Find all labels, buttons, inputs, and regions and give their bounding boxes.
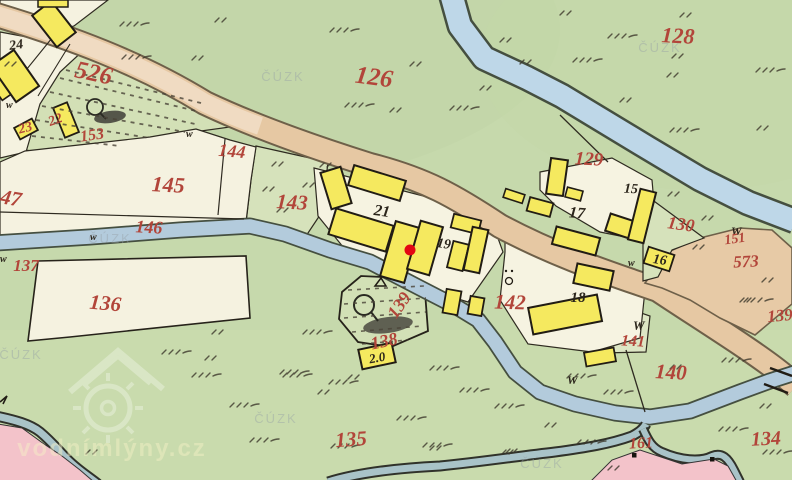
svg-text:129: 129 — [574, 148, 604, 170]
svg-text:144: 144 — [218, 140, 247, 162]
svg-text:w: w — [628, 258, 635, 269]
svg-text:130: 130 — [666, 212, 696, 236]
svg-text:ČÚZK: ČÚZK — [261, 69, 304, 84]
svg-text:145: 145 — [151, 171, 185, 198]
svg-text:143: 143 — [276, 189, 309, 215]
svg-text:ČÚZK: ČÚZK — [254, 411, 297, 426]
svg-text:153: 153 — [79, 125, 105, 145]
svg-text:126: 126 — [353, 62, 394, 94]
svg-text:573: 573 — [733, 251, 760, 271]
svg-text:w: w — [0, 254, 7, 265]
svg-text:137: 137 — [13, 256, 40, 275]
svg-text:134: 134 — [750, 427, 781, 451]
svg-text:135: 135 — [334, 426, 367, 452]
svg-text:15: 15 — [624, 182, 639, 198]
svg-text:141: 141 — [621, 332, 646, 350]
svg-text:ČÚZK: ČÚZK — [88, 231, 131, 246]
svg-text:24: 24 — [7, 37, 24, 54]
svg-text:21: 21 — [372, 202, 391, 221]
svg-text:17: 17 — [568, 204, 586, 222]
svg-text:W: W — [567, 373, 579, 387]
svg-text:139: 139 — [766, 305, 792, 326]
svg-text:18: 18 — [571, 290, 587, 306]
svg-text:16: 16 — [652, 252, 668, 269]
svg-text:w: w — [186, 129, 193, 140]
svg-text:136: 136 — [89, 290, 123, 317]
svg-text:140: 140 — [655, 359, 688, 385]
svg-text:146: 146 — [135, 216, 163, 237]
svg-text:19: 19 — [436, 236, 452, 253]
svg-text:142: 142 — [494, 289, 527, 314]
svg-text:W: W — [633, 318, 646, 333]
svg-text:151: 151 — [723, 231, 746, 249]
svg-text:ČÚZK: ČÚZK — [638, 40, 681, 55]
svg-text:161: 161 — [629, 434, 654, 452]
svg-text:ČÚZK: ČÚZK — [0, 347, 43, 362]
svg-text:w: w — [6, 100, 13, 111]
svg-text:vodnímlýny.cz: vodnímlýny.cz — [17, 435, 207, 462]
svg-text:ČÚZK: ČÚZK — [520, 456, 563, 471]
